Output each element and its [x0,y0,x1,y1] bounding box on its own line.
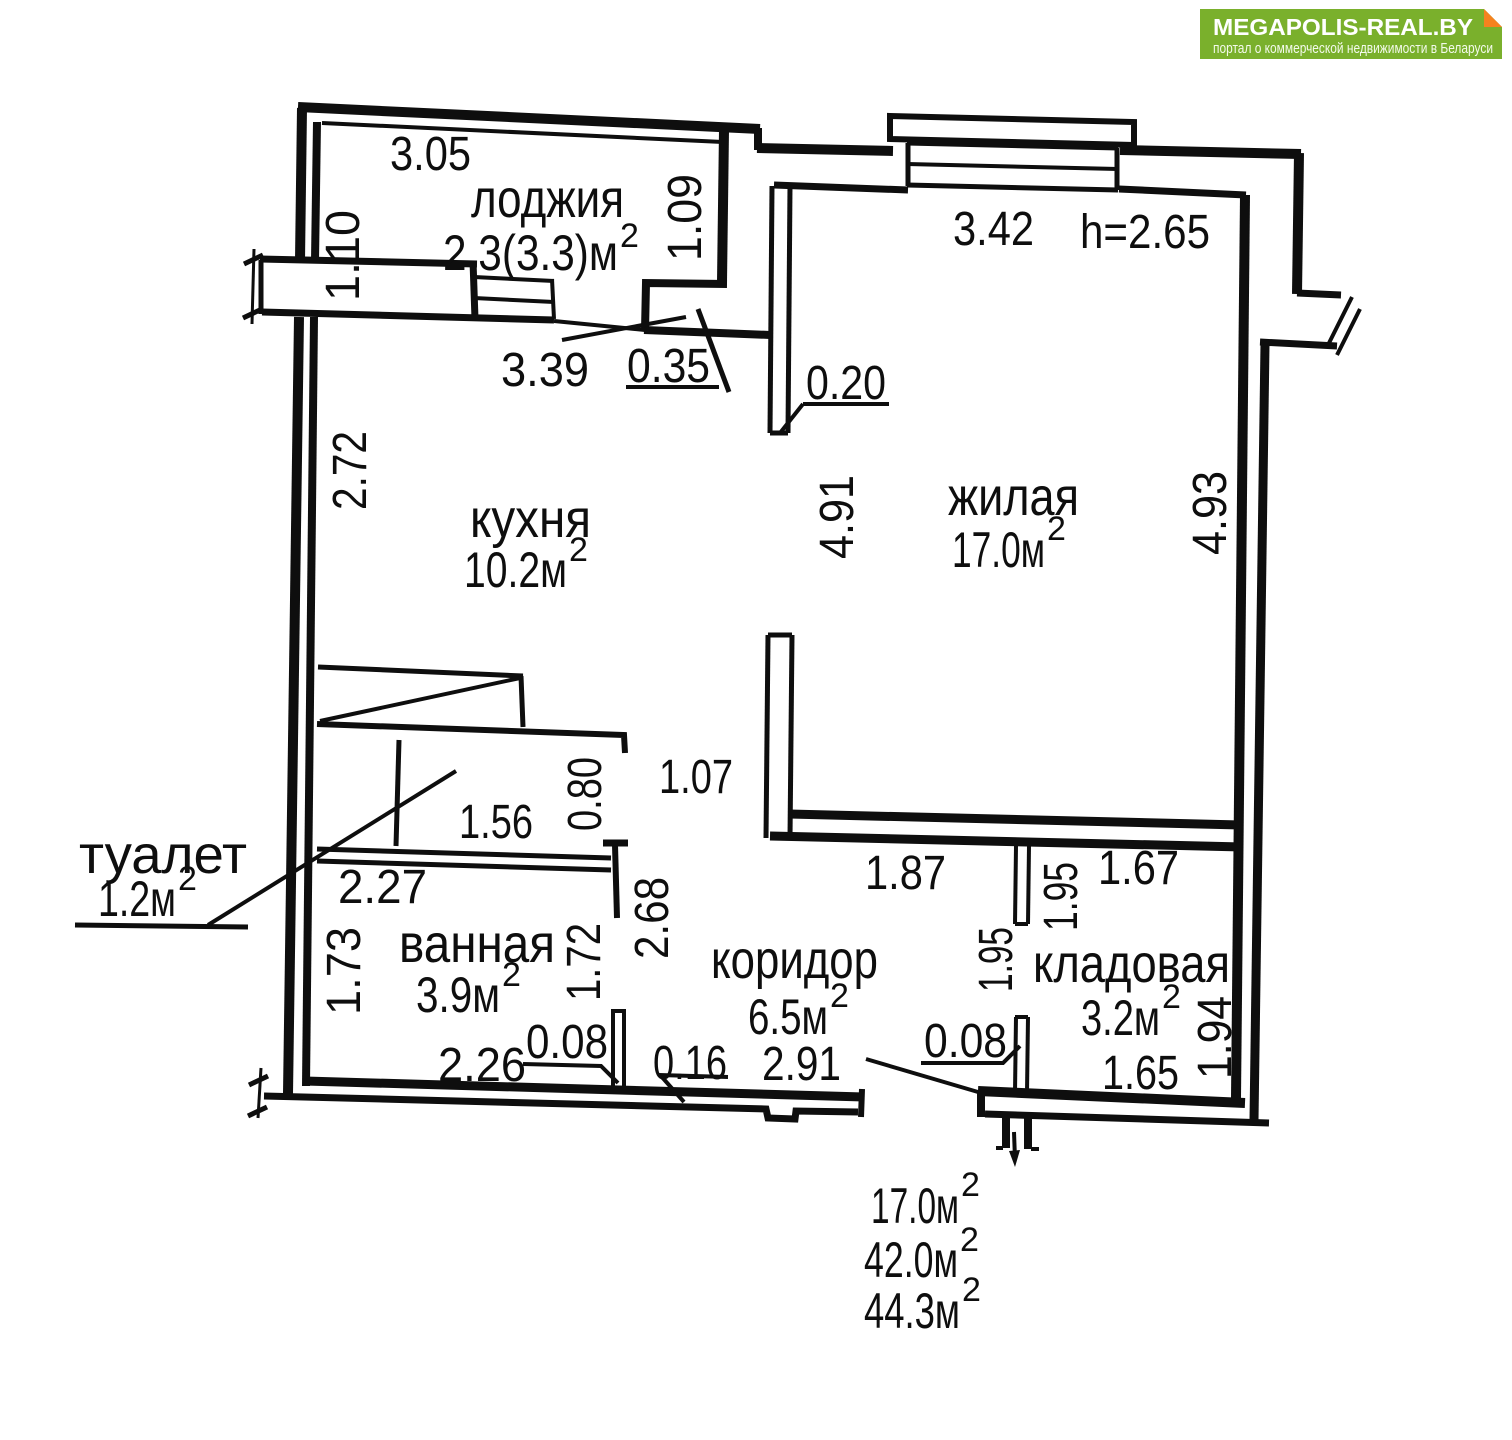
svg-text:0.80: 0.80 [559,757,612,831]
svg-text:3.05: 3.05 [390,128,471,181]
svg-text:лоджия: лоджия [471,169,624,229]
svg-text:1.87: 1.87 [865,847,946,900]
svg-text:1.67: 1.67 [1098,842,1179,895]
svg-text:2.68: 2.68 [626,877,679,959]
svg-text:2: 2 [1162,978,1181,1016]
svg-text:0.20: 0.20 [806,357,886,410]
svg-text:0.08: 0.08 [526,1016,608,1069]
svg-text:0.08: 0.08 [924,1015,1007,1068]
svg-text:3.39: 3.39 [501,344,589,397]
svg-text:2.91: 2.91 [762,1038,841,1091]
svg-text:3.9м: 3.9м [416,967,500,1023]
svg-text:17.0м: 17.0м [871,1178,959,1234]
svg-text:2.72: 2.72 [324,431,377,510]
svg-text:3.42: 3.42 [953,203,1034,256]
svg-text:17.0м: 17.0м [952,522,1045,578]
svg-text:портал о коммерческой недвижим: портал о коммерческой недвижимости в Бел… [1213,40,1493,57]
svg-text:1.95: 1.95 [1035,862,1088,931]
svg-text:кладовая: кладовая [1033,934,1230,994]
svg-text:44.3м: 44.3м [864,1283,960,1339]
svg-text:2: 2 [961,1166,980,1204]
svg-text:2: 2 [620,217,639,255]
svg-text:1.72: 1.72 [558,923,611,1001]
svg-text:1.94: 1.94 [1189,996,1242,1079]
svg-text:ванная: ванная [399,914,555,974]
svg-text:2: 2 [830,977,849,1015]
svg-text:1.09: 1.09 [659,174,712,261]
svg-text:42.0м: 42.0м [864,1232,958,1288]
svg-text:MEGAPOLIS-REAL.BY: MEGAPOLIS-REAL.BY [1213,14,1473,40]
svg-text:10.2м: 10.2м [464,542,567,598]
svg-text:3.2м: 3.2м [1081,990,1160,1046]
svg-text:2.27: 2.27 [338,861,427,914]
svg-text:1.73: 1.73 [318,927,371,1015]
svg-text:4.93: 4.93 [1184,471,1237,555]
svg-text:4.91: 4.91 [811,475,864,559]
svg-text:2.26: 2.26 [438,1039,526,1092]
svg-text:1.07: 1.07 [659,751,733,804]
svg-text:0.16: 0.16 [653,1037,727,1090]
svg-text:1.65: 1.65 [1102,1047,1179,1100]
svg-text:h=2.65: h=2.65 [1080,206,1210,259]
svg-text:2: 2 [962,1271,981,1309]
svg-text:1.2м: 1.2м [98,871,176,927]
svg-text:2: 2 [960,1221,979,1259]
svg-text:0.35: 0.35 [627,340,710,393]
svg-text:2: 2 [569,531,588,569]
svg-text:2: 2 [502,956,521,994]
svg-text:1.10: 1.10 [317,210,370,301]
svg-text:1.56: 1.56 [459,796,533,849]
svg-text:6.5м: 6.5м [748,989,828,1045]
svg-text:1.95: 1.95 [970,927,1023,992]
svg-text:коридор: коридор [711,930,878,990]
svg-text:2.3(3.3)м: 2.3(3.3)м [443,225,618,281]
svg-text:2: 2 [1047,510,1066,548]
svg-text:2: 2 [178,860,197,898]
